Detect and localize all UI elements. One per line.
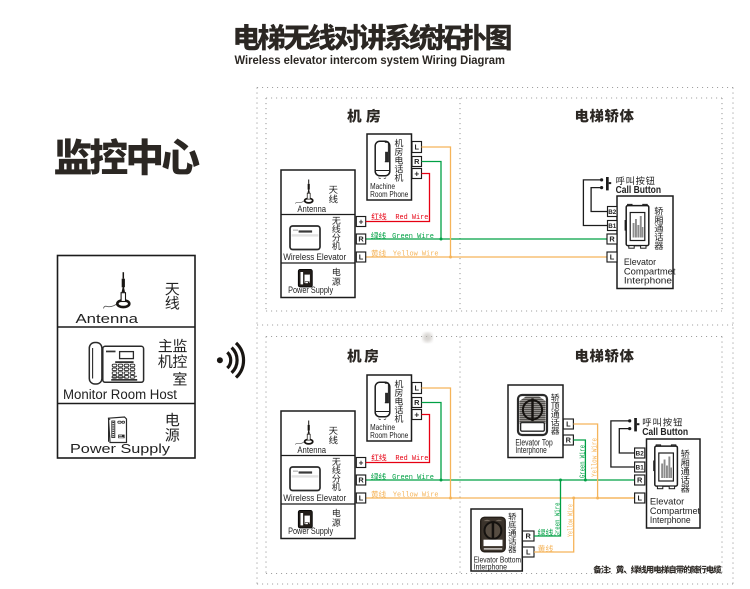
svg-text:Yellow Wire: Yellow Wire: [568, 504, 576, 537]
svg-text:R: R: [526, 532, 532, 541]
svg-text:Monitor Room Host: Monitor Room Host: [63, 387, 177, 402]
svg-text:L: L: [610, 253, 615, 262]
svg-text:R: R: [609, 235, 615, 244]
svg-text:Call Button: Call Button: [642, 427, 688, 438]
svg-text:Power Supply: Power Supply: [70, 441, 170, 456]
svg-text:Green Wire: Green Wire: [579, 445, 587, 478]
svg-text:B1: B1: [636, 464, 645, 471]
svg-text:L: L: [566, 420, 571, 429]
svg-text:Call Button: Call Button: [616, 185, 662, 196]
svg-text:L: L: [526, 548, 531, 557]
svg-text:Yellow Wire: Yellow Wire: [592, 438, 600, 477]
svg-text:L: L: [637, 494, 642, 503]
svg-text:Green Wire: Green Wire: [555, 503, 563, 537]
svg-text:Interphone: Interphone: [515, 445, 546, 455]
svg-text:Antenna: Antenna: [76, 311, 139, 326]
svg-text:Interphone: Interphone: [624, 275, 672, 286]
svg-text:R: R: [637, 476, 643, 485]
svg-text:Wireless elevator intercom sys: Wireless elevator intercom system Wiring…: [235, 53, 506, 67]
svg-text:Interphone: Interphone: [474, 561, 508, 571]
svg-text:Interphone: Interphone: [650, 514, 691, 525]
svg-text:R: R: [566, 436, 572, 445]
svg-text:B2: B2: [636, 450, 645, 457]
svg-text:B2: B2: [608, 209, 617, 216]
svg-text:B1: B1: [608, 223, 617, 230]
